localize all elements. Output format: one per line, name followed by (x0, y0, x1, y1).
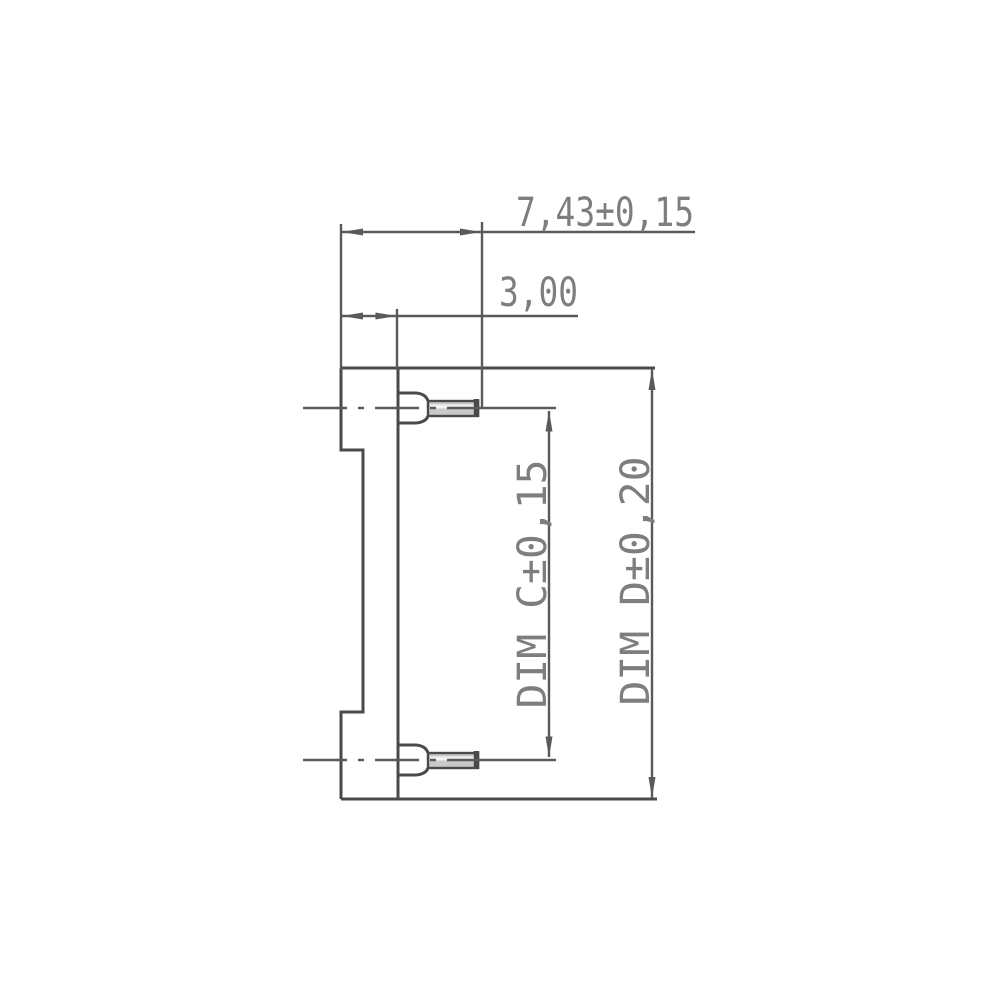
dimension-label-top-width: 7,43±0,15 (516, 190, 694, 236)
socket-body (341, 368, 657, 799)
arrowhead-bottom (546, 737, 553, 758)
arrowhead-top (649, 369, 656, 390)
arrowhead-right (376, 313, 397, 320)
dimension-c: DIM C±0,15 (510, 411, 556, 758)
drawing-canvas: 7,43±0,15 3,00 DIM C±0,15 DIM D±0,20 (0, 0, 1000, 1000)
arrowhead-right (460, 229, 481, 236)
body-left-outline (341, 368, 363, 799)
arrowhead-left (342, 313, 363, 320)
dimension-label-c: DIM C±0,15 (510, 460, 556, 709)
arrowhead-bottom (649, 777, 656, 798)
technical-drawing: 7,43±0,15 3,00 DIM C±0,15 DIM D±0,20 (0, 0, 1000, 1000)
dimension-label-pin-offset: 3,00 (499, 270, 578, 316)
dimension-d: DIM D±0,20 (613, 369, 659, 798)
dimension-label-d: DIM D±0,20 (613, 457, 659, 706)
arrowhead-left (342, 229, 363, 236)
dimension-pin-offset: 3,00 (342, 270, 578, 370)
arrowhead-top (546, 411, 553, 432)
